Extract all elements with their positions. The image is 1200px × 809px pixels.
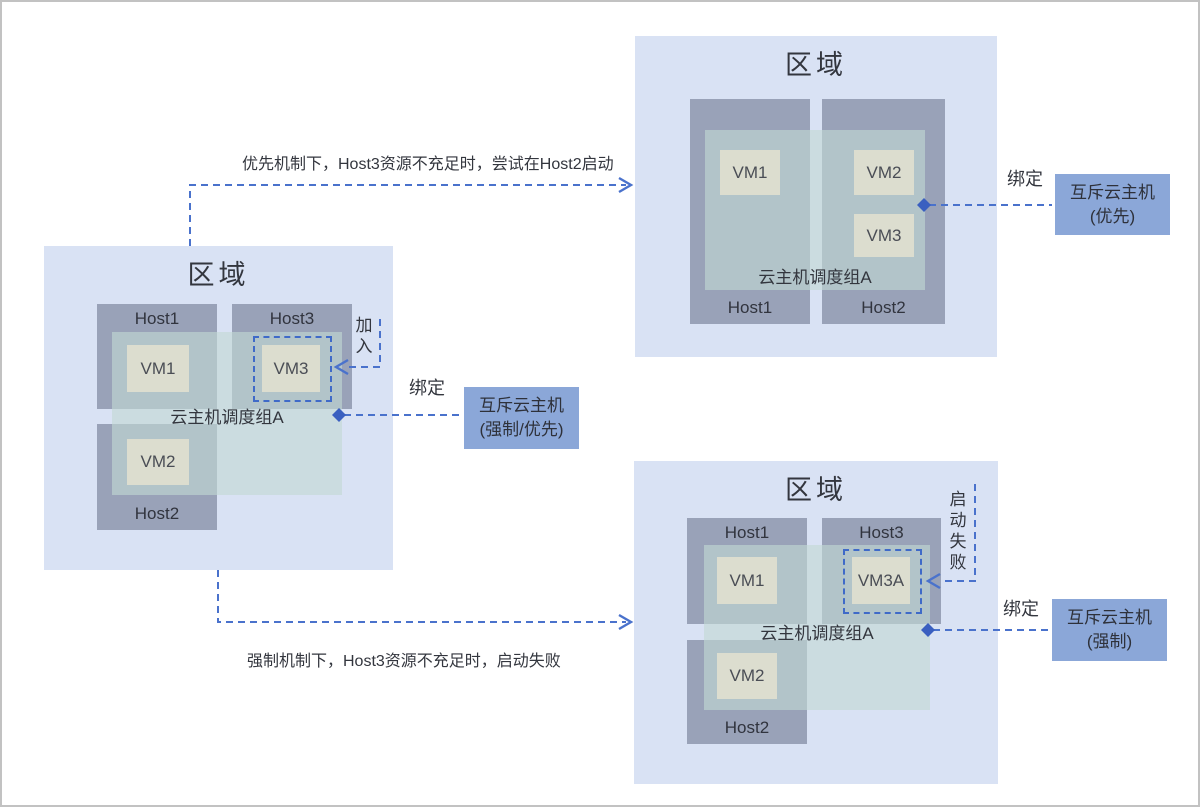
zone-top-right-vm1: VM1 — [720, 150, 780, 195]
zone-left-title: 区域 — [44, 253, 393, 292]
zone-top-right-scheduling-group-label: 云主机调度组A — [705, 263, 925, 288]
zone-left-vm1: VM1 — [127, 345, 189, 392]
priority-flow-arrow-icon — [619, 178, 631, 192]
zone-top-right-host2-label: Host2 — [822, 298, 945, 318]
bind-label-top-right: 绑定 — [1007, 165, 1043, 191]
zone-left-vm2: VM2 — [127, 439, 189, 485]
exclusive-badge-left-line1: 互斥云主机 — [464, 394, 579, 418]
zone-top-right-vm3: VM3 — [854, 214, 914, 257]
exclusive-badge-left: 互斥云主机 (强制/优先) — [464, 387, 579, 449]
mandatory-flow-arrow-icon — [619, 615, 631, 629]
zone-top-right-title: 区域 — [635, 43, 997, 82]
diagram-canvas: 区域 Host1 Host3 Host2 云主机调度组A VM1 VM3 VM2… — [0, 0, 1200, 807]
exclusive-badge-top-right: 互斥云主机 (优先) — [1055, 174, 1170, 235]
exclusive-badge-bottom-right-line2: (强制) — [1052, 630, 1167, 654]
zone-bottom-right-vm1: VM1 — [717, 557, 777, 604]
zone-left-vm3-join-outline — [253, 336, 332, 402]
join-label: 加入 — [354, 315, 374, 357]
priority-flow-line — [190, 185, 626, 246]
zone-left-host1-label: Host1 — [97, 309, 217, 329]
zone-top-right-host1-label: Host1 — [690, 298, 810, 318]
zone-bottom-right-title: 区域 — [634, 468, 998, 507]
start-fail-label: 启动失败 — [948, 489, 968, 573]
bind-label-bottom-right: 绑定 — [1003, 595, 1039, 621]
zone-bottom-right-host3-label: Host3 — [822, 523, 941, 543]
bind-label-left: 绑定 — [409, 374, 445, 400]
exclusive-badge-left-line2: (强制/优先) — [464, 418, 579, 442]
exclusive-badge-top-right-line2: (优先) — [1055, 205, 1170, 229]
zone-bottom-right-host2-label: Host2 — [687, 718, 807, 738]
zone-left-host2-label: Host2 — [97, 504, 217, 524]
zone-left-host3-label: Host3 — [232, 309, 352, 329]
zone-bottom-right-host1-label: Host1 — [687, 523, 807, 543]
mandatory-note: 强制机制下，Host3资源不充足时，启动失败 — [247, 647, 561, 671]
zone-left: 区域 Host1 Host3 Host2 云主机调度组A VM1 VM3 VM2 — [44, 246, 393, 570]
zone-top-right: 区域 Host1 Host2 云主机调度组A VM1 VM2 VM3 — [635, 36, 997, 357]
zone-bottom-right-scheduling-group-label: 云主机调度组A — [704, 619, 930, 644]
zone-bottom-right: 区域 Host1 Host3 Host2 云主机调度组A VM1 VM3A VM… — [634, 461, 998, 784]
zone-left-scheduling-group-label: 云主机调度组A — [112, 403, 342, 428]
priority-note: 优先机制下，Host3资源不充足时，尝试在Host2启动 — [242, 150, 614, 174]
exclusive-badge-bottom-right: 互斥云主机 (强制) — [1052, 599, 1167, 661]
exclusive-badge-top-right-line1: 互斥云主机 — [1055, 181, 1170, 205]
exclusive-badge-bottom-right-line1: 互斥云主机 — [1052, 606, 1167, 630]
mandatory-flow-line — [218, 570, 626, 622]
zone-bottom-right-vm2: VM2 — [717, 653, 777, 699]
zone-top-right-vm2: VM2 — [854, 150, 914, 195]
zone-bottom-right-vm3a-fail-outline — [843, 549, 922, 614]
